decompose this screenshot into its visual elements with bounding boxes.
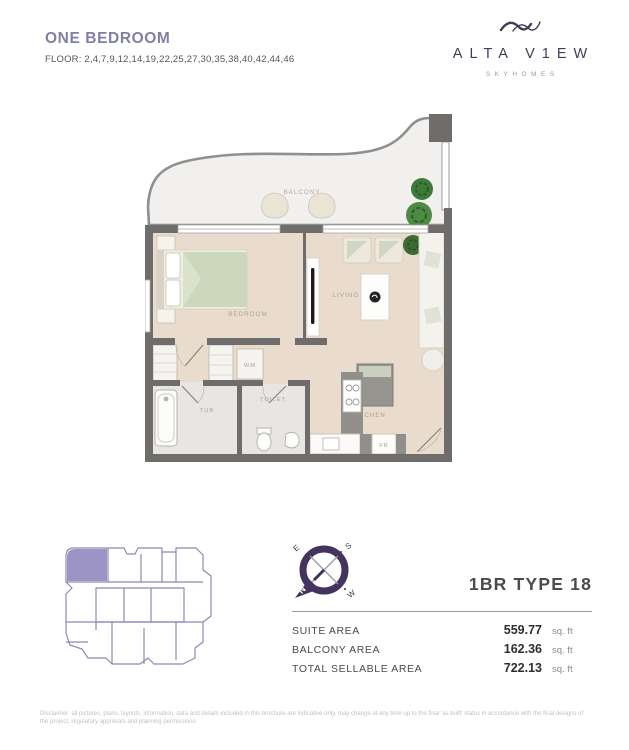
floor-list: FLOOR: 2,4,7,9,12,14,19,22,25,27,30,35,3…	[45, 54, 294, 65]
disclaimer: Disclaimer: all pictures, plans, layouts…	[40, 710, 592, 726]
balcony-area-unit: sq. ft	[552, 645, 592, 656]
brand-logo: ALTA V1EW SKYHOMES	[440, 16, 600, 78]
total-area-value: 722.13	[504, 661, 542, 675]
wm-label: WM	[244, 363, 256, 369]
keyplan	[36, 530, 246, 695]
divider-line	[292, 611, 592, 612]
total-area-label: TOTAL SELLABLE AREA	[292, 663, 422, 675]
total-area-unit: sq. ft	[552, 664, 592, 675]
suite-area-label: SUITE AREA	[292, 625, 360, 637]
suite-area-unit: sq. ft	[552, 626, 592, 637]
bathtub	[155, 390, 177, 446]
brand-tagline: SKYHOMES	[481, 71, 558, 78]
balcony-label: BALCONY	[283, 189, 320, 196]
tv-unit	[307, 258, 319, 336]
balcony-area-value: 162.36	[504, 642, 542, 656]
bedroom-label: BEDROOM	[228, 311, 268, 318]
unit-info: 1BR TYPE 18 SUITE AREA 559.77 sq. ft BAL…	[292, 574, 592, 677]
kitchen-label: KITCHEN	[352, 413, 385, 419]
brochure-page: ONE BEDROOM FLOOR: 2,4,7,9,12,14,19,22,2…	[0, 0, 629, 750]
compass-e: E	[291, 543, 301, 553]
compass-s: S	[343, 541, 353, 551]
area-row-suite: SUITE AREA 559.77 sq. ft	[292, 621, 592, 640]
floorplan: BALCONY BEDROOM LIVING WM TUB TOILET KIT…	[145, 112, 457, 470]
fr-label: FR	[379, 443, 388, 449]
suite-area-value: 559.77	[504, 623, 542, 637]
balcony-area-label: BALCONY AREA	[292, 644, 380, 656]
living-label: LIVING	[333, 292, 360, 299]
title-block: ONE BEDROOM FLOOR: 2,4,7,9,12,14,19,22,2…	[45, 30, 294, 65]
keyplan-highlighted-unit	[67, 549, 107, 581]
balcony-floor	[148, 118, 447, 225]
balustrade	[442, 142, 449, 210]
side-table	[422, 349, 444, 371]
tub-label: TUB	[200, 408, 215, 414]
brand-name: ALTA V1EW	[446, 46, 594, 62]
wave-logo-icon	[497, 16, 543, 36]
area-row-balcony: BALCONY AREA 162.36 sq. ft	[292, 640, 592, 659]
page-title: ONE BEDROOM	[45, 30, 294, 48]
coffee-table	[361, 274, 389, 320]
area-row-total: TOTAL SELLABLE AREA 722.13 sq. ft	[292, 659, 592, 678]
unit-type-label: 1BR TYPE 18	[292, 574, 592, 595]
bench-seat	[419, 232, 444, 348]
toilet-label: TOILET	[260, 397, 286, 403]
